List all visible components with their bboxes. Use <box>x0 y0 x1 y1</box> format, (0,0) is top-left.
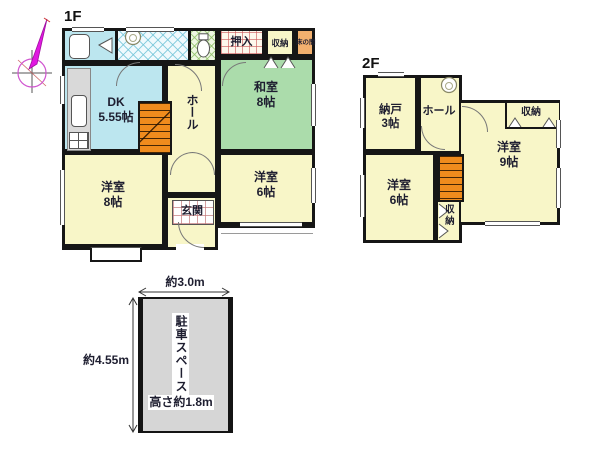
window <box>556 168 561 208</box>
window <box>556 120 561 148</box>
label-washitsu: 和室 8帖 <box>236 80 296 110</box>
parking-depth-label: 約4.55m <box>80 353 132 368</box>
label-hall-2f: ホール <box>418 105 460 119</box>
bath-door-icon <box>98 37 113 54</box>
width-arrow <box>136 286 232 298</box>
window <box>311 84 316 126</box>
parking-height-label: 高さ約1.8m <box>148 395 214 410</box>
porch-step <box>221 233 313 234</box>
window <box>240 222 302 227</box>
window <box>311 168 316 203</box>
floor1-cutout <box>218 228 315 250</box>
label-genkan: 玄関 <box>172 205 212 219</box>
depth-arrow <box>127 295 139 435</box>
window <box>485 221 540 226</box>
parking-label: 駐車スペース <box>172 313 189 395</box>
window <box>360 98 365 128</box>
label-hall-1f: ホール <box>184 94 199 130</box>
window <box>360 175 365 217</box>
window <box>378 72 404 77</box>
label-shunou-2f-bottom: 収納 <box>442 204 454 227</box>
label-tokonoma: 床の間 <box>296 39 314 47</box>
label-yoshitsu9: 洋室 9帖 <box>477 140 541 170</box>
floorplan-page: 1F <box>0 0 600 473</box>
label-nando: 納戸 3帖 <box>366 103 415 132</box>
stairs-2f <box>438 154 464 202</box>
stove-icon <box>69 132 89 149</box>
window <box>60 170 65 225</box>
label-yoshitsu6-2f: 洋室 6帖 <box>368 178 430 208</box>
compass-icon <box>6 16 60 94</box>
window <box>60 76 65 104</box>
label-dk: DK 5.55帖 <box>85 95 147 125</box>
label-yoshitsu8: 洋室 8帖 <box>80 180 146 210</box>
closet-fold-door-icon <box>263 56 297 69</box>
toilet-icon <box>195 33 212 59</box>
label-yoshitsu6-1f: 洋室 6帖 <box>236 170 296 200</box>
window <box>126 27 174 32</box>
washbasin-icon <box>440 76 458 94</box>
window <box>72 27 104 32</box>
label-oshiire: 押入 <box>221 36 262 50</box>
bathtub-icon <box>69 34 90 59</box>
floor1-title: 1F <box>64 8 82 25</box>
label-shunou-2f-top: 収納 <box>509 107 553 120</box>
bay-window <box>90 247 142 262</box>
label-shunou-1f: 収納 <box>266 38 294 49</box>
floor2-title: 2F <box>362 55 380 72</box>
